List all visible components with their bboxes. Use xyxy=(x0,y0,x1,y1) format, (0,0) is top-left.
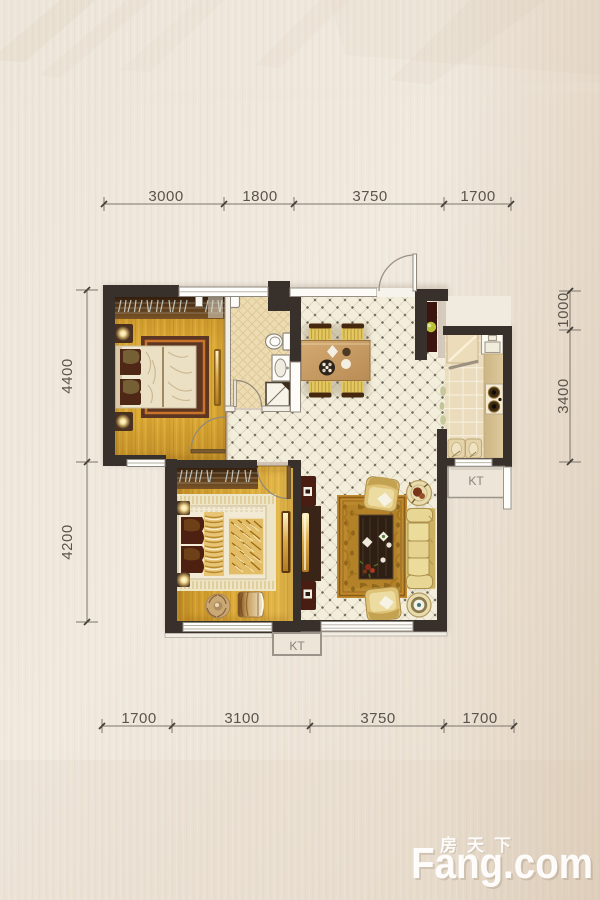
svg-text:1700: 1700 xyxy=(460,188,495,205)
svg-text:KT: KT xyxy=(468,474,484,488)
svg-text:1000: 1000 xyxy=(555,292,572,327)
svg-text:4400: 4400 xyxy=(59,358,76,393)
svg-text:3000: 3000 xyxy=(148,188,183,205)
svg-text:3750: 3750 xyxy=(352,188,387,205)
svg-text:3750: 3750 xyxy=(360,710,395,727)
svg-text:Fang.com: Fang.com xyxy=(411,839,593,888)
svg-text:3100: 3100 xyxy=(224,710,259,727)
svg-text:1800: 1800 xyxy=(242,188,277,205)
svg-text:KT: KT xyxy=(289,639,305,653)
svg-text:4200: 4200 xyxy=(59,524,76,559)
svg-text:3400: 3400 xyxy=(555,378,572,413)
svg-text:1700: 1700 xyxy=(462,710,497,727)
svg-text:1700: 1700 xyxy=(121,710,156,727)
